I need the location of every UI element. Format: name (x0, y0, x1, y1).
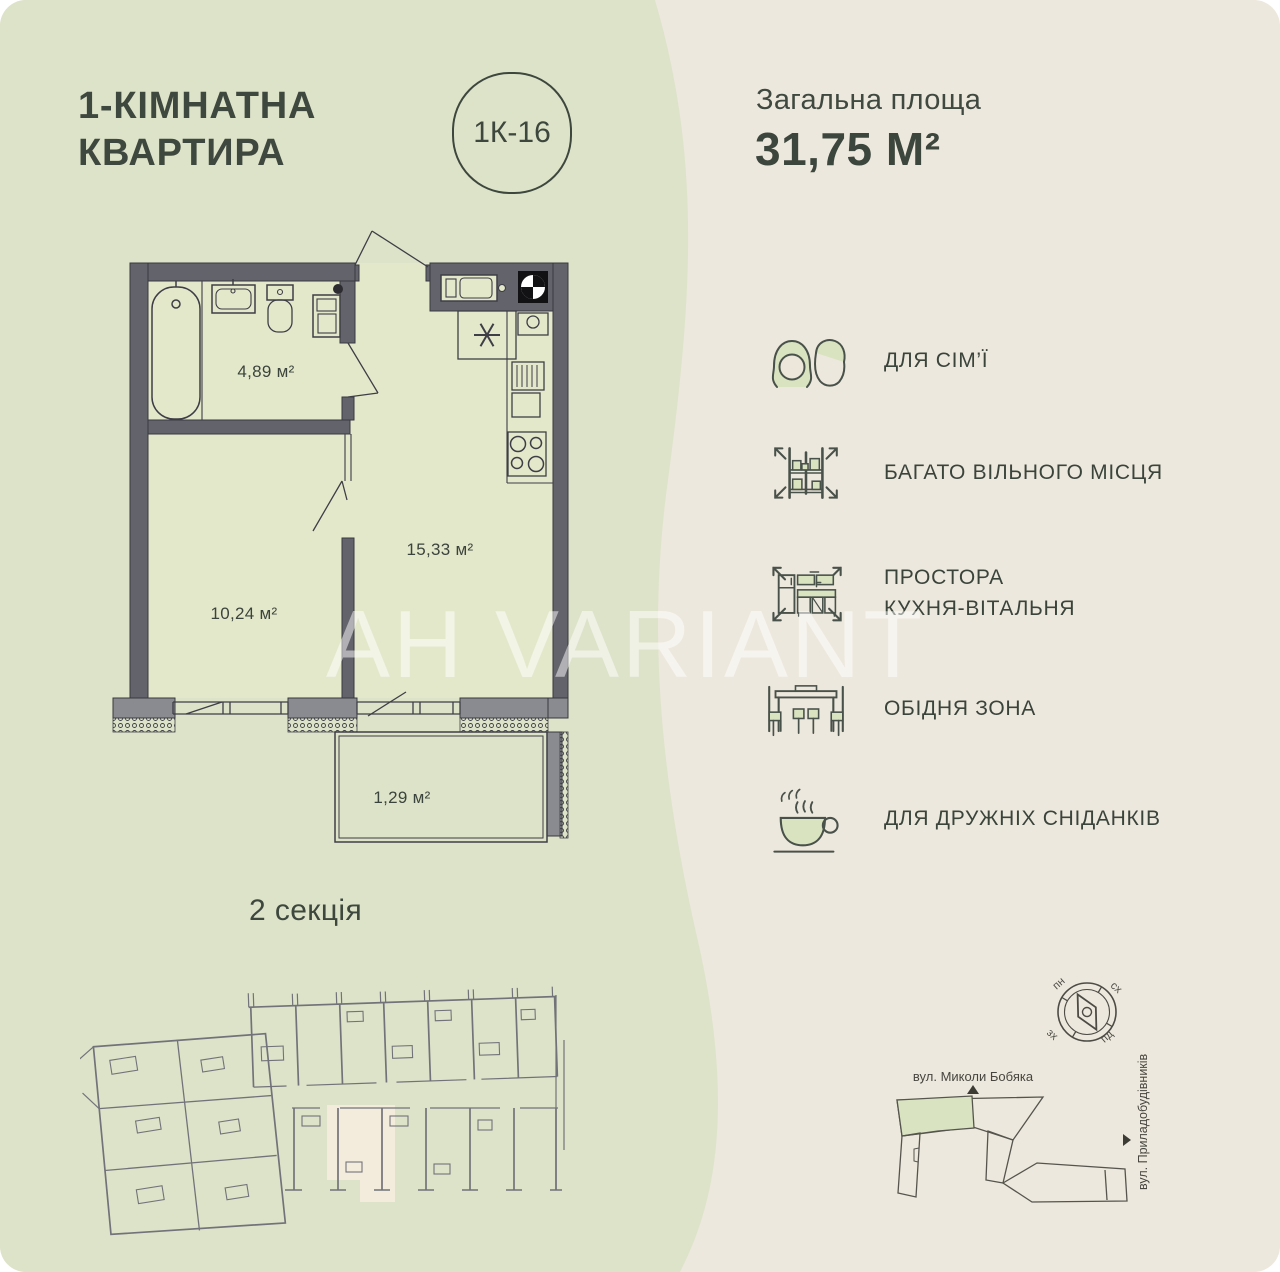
feature-kitchen: ПРОСТОРА КУХНЯ-ВІТАЛЬНЯ (758, 547, 1258, 639)
total-area-value: 31,75 М² (755, 122, 941, 176)
title-line-1: 1-КІМНАТНА (78, 83, 316, 130)
feature-label: ПРОСТОРА КУХНЯ-ВІТАЛЬНЯ (884, 562, 1075, 625)
street-label-right: вул. Приладобудівників (1136, 1053, 1150, 1190)
feature-label-line-2: КУХНЯ-ВІТАЛЬНЯ (884, 593, 1075, 625)
balcony-area-label: 1,29 м² (373, 788, 430, 807)
feature-label: ДЛЯ СІМ’Ї (884, 345, 988, 377)
street-marker-top (967, 1085, 979, 1094)
feature-family: ДЛЯ СІМ’Ї (758, 315, 1258, 407)
family-icon (758, 329, 854, 393)
kitchen-icon (758, 558, 854, 628)
site-map: пн сх зх пд вул. Миколи Бобяка вул. Прил… (870, 950, 1180, 1260)
apartment-card: 1-КІМНАТНА КВАРТИРА 1К-16 Загальна площа… (0, 0, 1280, 1272)
feature-label-line-1: ПРОСТОРА (884, 562, 1075, 594)
feature-label: ОБІДНЯ ЗОНА (884, 693, 1036, 725)
balcony-walls (335, 732, 547, 842)
compass-north: пн (1051, 975, 1068, 992)
section-label: 2 секція (249, 894, 362, 928)
street-marker-right (1123, 1134, 1131, 1146)
floor-plan: 4,89 м² 15,33 м² 10,24 м² 1,29 м² (110, 225, 572, 875)
space-icon (758, 434, 854, 512)
bedroom-area-label: 10,24 м² (210, 604, 277, 623)
dining-icon (758, 676, 854, 742)
compass-south: пд (1098, 1028, 1116, 1046)
kitchen-living-area-label: 15,33 м² (406, 540, 473, 559)
street-label-top: вул. Миколи Бобяка (913, 1069, 1034, 1084)
feature-label: БАГАТО ВІЛЬНОГО МІСЦЯ (884, 457, 1163, 489)
unit-number-badge: 1К-16 (452, 72, 572, 194)
unit-number: 1К-16 (473, 116, 551, 150)
highlighted-building-section (897, 1096, 974, 1136)
feature-label: ДЛЯ ДРУЖНІХ СНІДАНКІВ (884, 803, 1161, 835)
section-plan-lines (80, 983, 564, 1252)
page-title: 1-КІМНАТНА КВАРТИРА (78, 83, 316, 177)
breakfast-icon (758, 785, 854, 853)
building-outline (897, 1096, 1127, 1202)
section-overview-plan (80, 980, 565, 1265)
compass-west: зх (1044, 1027, 1060, 1043)
total-area-label: Загальна площа (756, 84, 981, 117)
feature-space: БАГАТО ВІЛЬНОГО МІСЦЯ (758, 427, 1258, 519)
feature-breakfast: ДЛЯ ДРУЖНІХ СНІДАНКІВ (758, 773, 1258, 865)
title-line-2: КВАРТИРА (78, 130, 316, 177)
feature-dining: ОБІДНЯ ЗОНА (758, 663, 1258, 755)
bathroom-area-label: 4,89 м² (237, 362, 294, 381)
